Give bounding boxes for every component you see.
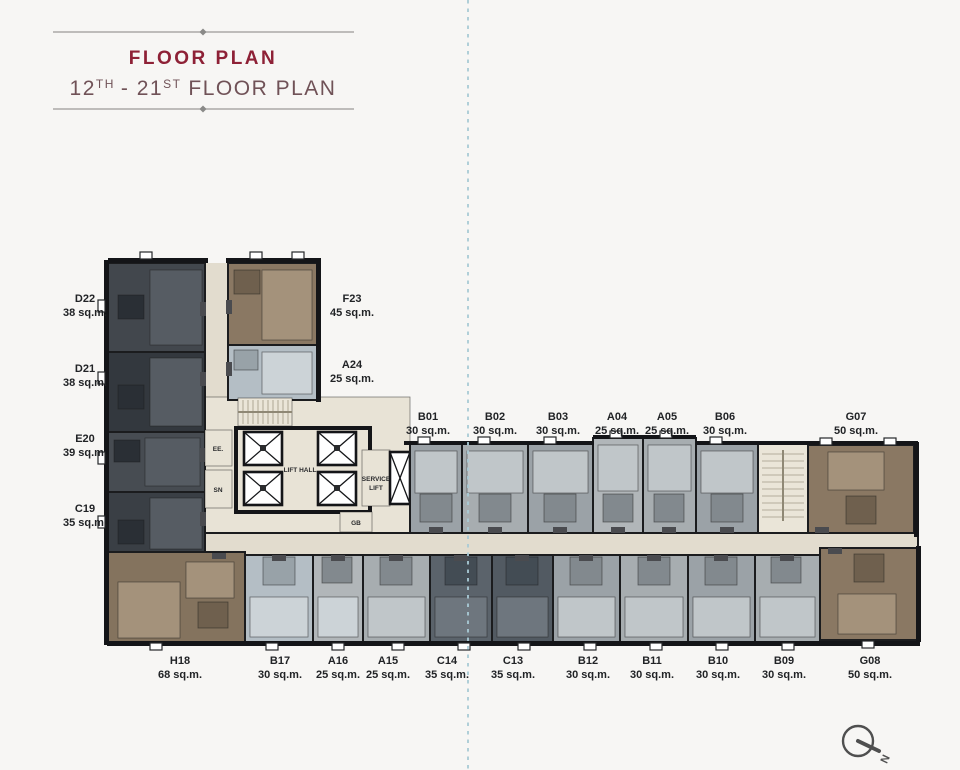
vertical-corridor — [205, 263, 228, 397]
sn-room-label: SN — [213, 487, 222, 494]
unit-label-b06-name: B06 — [715, 411, 735, 423]
subtitle-floor-start-suffix: TH — [96, 77, 115, 91]
service-lift-label-line1: SERVICE — [362, 476, 391, 483]
main-corridor — [205, 533, 918, 555]
unit-label-c19-name: C19 — [75, 503, 95, 515]
top-right-stairs — [758, 444, 808, 533]
floor-plan-drawing: LIFT HALL EE. SN GB SERVICE LIFT — [98, 252, 921, 650]
unit-a24 — [226, 345, 318, 400]
page-title: FLOOR PLAN — [129, 48, 278, 69]
service-lift-label-line2: LIFT — [369, 485, 383, 492]
unit-label-b10-name: B10 — [708, 655, 728, 667]
unit-b10 — [688, 555, 755, 642]
unit-b09 — [755, 555, 820, 642]
page-subtitle: 12TH- 21STFLOOR PLAN — [70, 77, 337, 100]
unit-d21 — [108, 352, 206, 432]
unit-label-b03-name: B03 — [548, 411, 568, 423]
unit-label-c13-area: 35 sq.m. — [491, 669, 535, 681]
unit-label-d21-area: 38 sq.m. — [63, 377, 107, 389]
unit-label-b01-area: 30 sq.m. — [406, 425, 450, 437]
unit-d22 — [108, 263, 206, 352]
unit-a15 — [363, 555, 430, 642]
lift-shaft-1 — [244, 432, 282, 465]
unit-label-b11-name: B11 — [642, 655, 662, 667]
lift-shaft-2 — [318, 432, 356, 465]
unit-label-a24-name: A24 — [342, 359, 363, 371]
service-lift: SERVICE LIFT — [362, 450, 410, 506]
unit-label-b02-name: B02 — [485, 411, 505, 423]
unit-label-f23-area: 45 sq.m. — [330, 307, 374, 319]
lift-hall-label: LIFT HALL — [284, 467, 317, 474]
unit-b12 — [553, 555, 620, 642]
unit-g08 — [820, 548, 920, 640]
unit-label-b17-area: 30 sq.m. — [258, 669, 302, 681]
unit-label-g07-name: G07 — [846, 411, 867, 423]
unit-label-b09-name: B09 — [774, 655, 794, 667]
unit-c13 — [492, 555, 553, 642]
unit-label-e20-name: E20 — [75, 433, 95, 445]
core-stairs — [238, 398, 292, 426]
unit-label-g08-area: 50 sq.m. — [848, 669, 892, 681]
unit-c14 — [430, 555, 492, 642]
unit-b17 — [245, 555, 313, 642]
unit-label-d21-name: D21 — [75, 363, 95, 375]
unit-label-b17-name: B17 — [270, 655, 290, 667]
title-rule-top-diamond — [199, 28, 206, 35]
unit-label-a04-area: 25 sq.m. — [595, 425, 639, 437]
unit-b03 — [528, 444, 593, 533]
unit-g07 — [808, 445, 914, 533]
unit-label-a05-area: 25 sq.m. — [645, 425, 689, 437]
unit-a05 — [643, 438, 696, 533]
unit-label-a05-name: A05 — [657, 411, 677, 423]
unit-label-b12-area: 30 sq.m. — [566, 669, 610, 681]
gb-room-label: GB — [351, 520, 361, 527]
unit-b11 — [620, 555, 688, 642]
unit-label-d22-area: 38 sq.m. — [63, 307, 107, 319]
unit-label-c13-name: C13 — [503, 655, 523, 667]
floor-plan-page: FLOOR PLAN 12TH- 21STFLOOR PLAN — [0, 0, 960, 770]
unit-label-b03-area: 30 sq.m. — [536, 425, 580, 437]
north-compass-icon: N — [843, 726, 891, 765]
unit-label-c14-area: 35 sq.m. — [425, 669, 469, 681]
unit-label-a24-area: 25 sq.m. — [330, 373, 374, 385]
unit-label-c14-name: C14 — [437, 655, 458, 667]
unit-a16 — [313, 555, 363, 642]
unit-b02 — [462, 444, 528, 533]
unit-a04 — [593, 438, 643, 533]
subtitle-floor-end: - 21 — [121, 77, 163, 100]
unit-b01 — [410, 444, 462, 533]
unit-label-a15-area: 25 sq.m. — [366, 669, 410, 681]
title-rule-bottom-diamond — [199, 105, 206, 112]
unit-label-h18-name: H18 — [170, 655, 190, 667]
unit-label-d22-name: D22 — [75, 293, 95, 305]
unit-label-a15-name: A15 — [378, 655, 398, 667]
unit-label-g07-area: 50 sq.m. — [834, 425, 878, 437]
unit-label-b10-area: 30 sq.m. — [696, 669, 740, 681]
unit-label-a16-area: 25 sq.m. — [316, 669, 360, 681]
compass-needle — [858, 741, 879, 751]
unit-label-b06-area: 30 sq.m. — [703, 425, 747, 437]
unit-label-b09-area: 30 sq.m. — [762, 669, 806, 681]
lift-shaft-3 — [244, 472, 282, 505]
unit-label-b11-area: 30 sq.m. — [630, 669, 674, 681]
unit-label-h18-area: 68 sq.m. — [158, 669, 202, 681]
unit-label-f23-name: F23 — [343, 293, 362, 305]
lift-shaft-4 — [318, 472, 356, 505]
unit-c19 — [108, 492, 206, 555]
subtitle-floor-start: 12 — [70, 77, 96, 100]
unit-label-b02-area: 30 sq.m. — [473, 425, 517, 437]
unit-e20 — [105, 432, 206, 492]
unit-f23 — [226, 263, 318, 345]
unit-label-g08-name: G08 — [860, 655, 881, 667]
subtitle-text: FLOOR PLAN — [188, 77, 336, 100]
unit-label-a04-name: A04 — [607, 411, 628, 423]
unit-label-c19-area: 35 sq.m. — [63, 517, 107, 529]
title-block: FLOOR PLAN 12TH- 21STFLOOR PLAN — [53, 28, 354, 112]
unit-label-b01-name: B01 — [418, 411, 438, 423]
compass-north-label: N — [877, 752, 891, 764]
unit-label-a16-name: A16 — [328, 655, 348, 667]
unit-b06 — [696, 444, 758, 533]
unit-label-b12-name: B12 — [578, 655, 598, 667]
ee-room-label: EE. — [213, 446, 224, 453]
unit-h18 — [108, 552, 245, 645]
subtitle-floor-end-suffix: ST — [163, 77, 181, 91]
unit-label-e20-area: 39 sq.m. — [63, 447, 107, 459]
